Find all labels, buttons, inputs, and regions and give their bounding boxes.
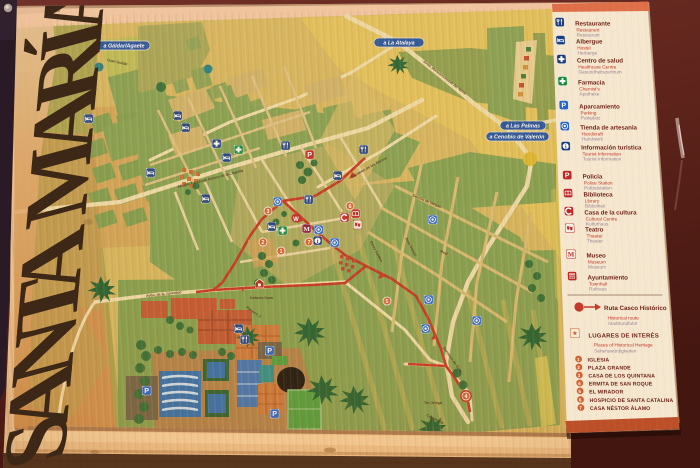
svg-text:7: 7 [579,406,582,411]
svg-text:Tourist Information: Tourist Information [583,157,622,162]
svg-text:Parkplatz: Parkplatz [581,116,601,121]
svg-text:1: 1 [577,357,580,362]
svg-text:Sehenswürdigkeiten: Sehenswürdigkeiten [594,348,637,353]
svg-text:Restaurant: Restaurant [577,33,601,38]
svg-text:PLAZA GRANDE: PLAZA GRANDE [588,365,631,371]
svg-text:Herberge: Herberge [577,51,597,56]
svg-text:3: 3 [578,373,581,378]
svg-text:Handwerk: Handwerk [582,137,604,142]
svg-text:Places of Historical Heritage: Places of Historical Heritage [594,343,653,348]
svg-text:HOSPICIO DE SANTA CATALINA: HOSPICIO DE SANTA CATALINA [589,398,673,404]
svg-text:Theater: Theater [587,239,604,244]
svg-text:IGLESIA: IGLESIA [587,357,609,363]
svg-text:LUGARES DE INTERÉS: LUGARES DE INTERÉS [588,332,659,340]
svg-text:2: 2 [577,365,580,370]
svg-text:Bibliothek: Bibliothek [585,204,606,209]
svg-text:6: 6 [579,398,582,403]
svg-text:Apotheke: Apotheke [579,92,599,97]
svg-text:Historical route: Historical route [607,316,639,321]
svg-text:5: 5 [578,389,581,394]
svg-text:Stadtrundfahrt: Stadtrundfahrt [608,321,639,326]
svg-text:ERMITA DE SAN ROQUE: ERMITA DE SAN ROQUE [589,381,653,387]
svg-text:Gesundheitszentrum: Gesundheitszentrum [578,70,622,75]
svg-text:Museum: Museum [588,265,606,270]
svg-text:Rathaus: Rathaus [589,287,607,292]
svg-text:CASA NÉSTOR ÁLAMO: CASA NÉSTOR ÁLAMO [590,404,651,412]
svg-text:4: 4 [578,381,581,386]
svg-text:Ruta Casco Histórico: Ruta Casco Histórico [604,305,667,312]
svg-text:EL MIRADOR: EL MIRADOR [589,389,624,395]
svg-text:Polizeistation: Polizeistation [584,186,612,191]
svg-text:CASA DE LOS QUINTANA: CASA DE LOS QUINTANA [588,373,655,379]
